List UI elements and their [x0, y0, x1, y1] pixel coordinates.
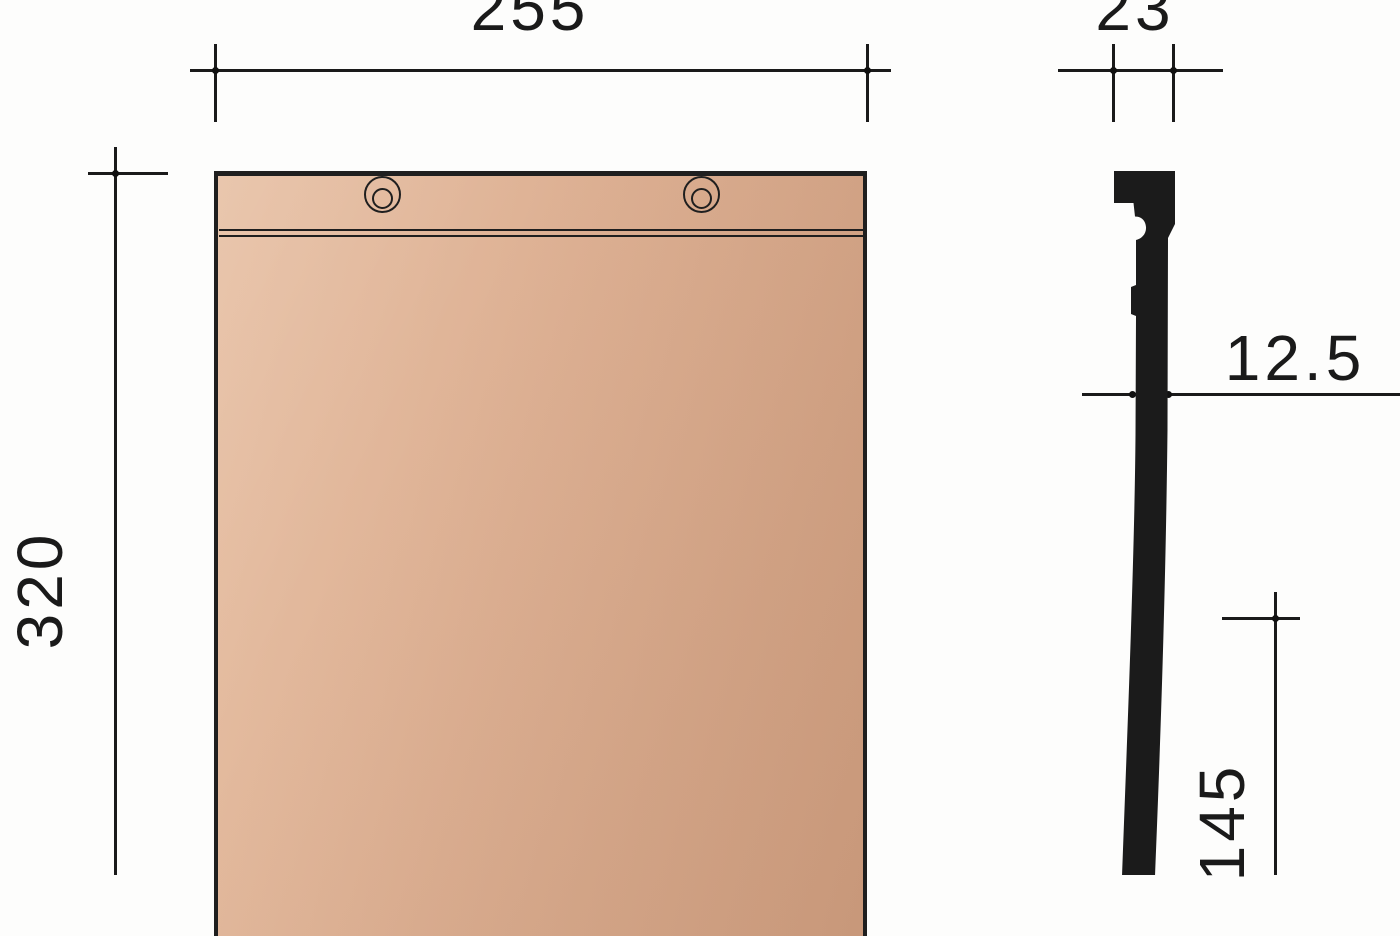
dim-lower-section-line — [1274, 592, 1277, 875]
dim-length-dot-top — [112, 170, 119, 177]
dim-length-tick-top — [88, 172, 168, 175]
nail-hole-left-inner-ring — [372, 188, 393, 209]
dim-width-tick-left — [214, 44, 217, 122]
dim-head-depth-tick-left — [1112, 44, 1115, 122]
dim-width-dot-right — [864, 67, 871, 74]
tile-side-profile-shape — [1114, 171, 1175, 875]
dim-width-label: 255 — [455, 0, 605, 40]
dim-width-line — [190, 69, 891, 72]
dim-head-depth-label: 23 — [1060, 0, 1210, 40]
dim-head-depth-line — [1058, 69, 1223, 72]
dim-width-dot-left — [212, 67, 219, 74]
dim-width-tick-right — [866, 44, 869, 122]
dim-thickness-label: 12.5 — [1220, 326, 1370, 390]
dim-length-line — [114, 147, 117, 875]
dim-lower-section-dot-top — [1272, 615, 1279, 622]
tile-head-line-lower — [219, 235, 863, 237]
nail-hole-right-inner-ring — [691, 188, 712, 209]
tile-side-profile — [1080, 160, 1210, 875]
dim-lower-section-tick-top — [1222, 617, 1300, 620]
dim-length-label: 320 — [8, 525, 72, 655]
dim-head-depth-dot-left — [1110, 67, 1117, 74]
tile-head-line-upper — [219, 229, 863, 231]
tile-front-view — [214, 171, 867, 936]
tile-technical-drawing: { "labels": { "overall_width_mm": "255",… — [0, 0, 1400, 875]
dim-head-depth-dot-right — [1170, 67, 1177, 74]
dim-head-depth-tick-right — [1172, 44, 1175, 122]
